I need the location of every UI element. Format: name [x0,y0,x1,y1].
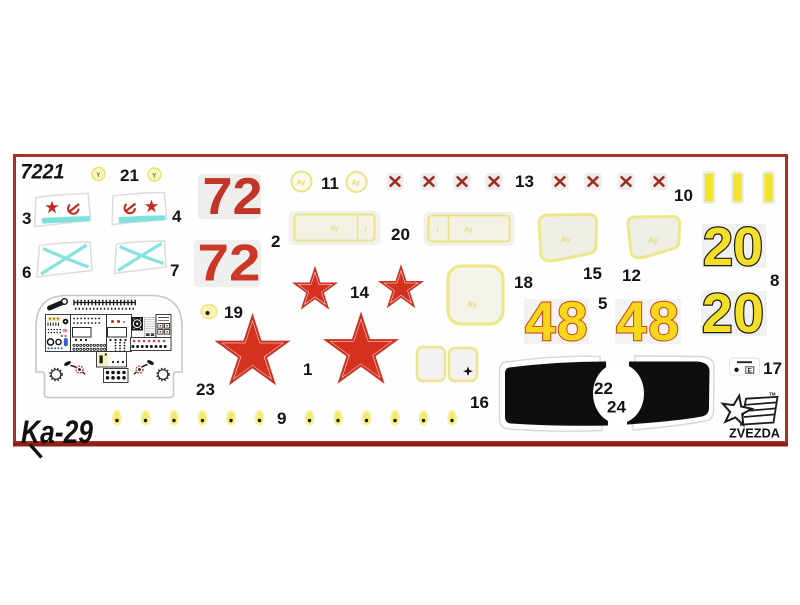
svg-text:9: 9 [277,409,286,428]
svg-text:24: 24 [607,398,626,417]
svg-text:5: 5 [598,294,607,313]
svg-text:15: 15 [583,264,602,283]
svg-text:Ay: Ay [352,180,361,187]
svg-text:14: 14 [350,283,369,302]
svg-text:16: 16 [470,393,489,412]
svg-text:6: 6 [22,263,31,282]
svg-text:7: 7 [170,261,179,280]
svg-text:Ay: Ay [297,180,306,187]
svg-text:Ay: Ay [330,226,339,233]
svg-text:72: 72 [203,167,263,225]
svg-text:48: 48 [616,290,679,352]
svg-text:Ay: Ay [464,227,473,234]
svg-text:22: 22 [594,379,613,398]
svg-text:TM: TM [769,392,776,397]
svg-text:20: 20 [391,225,410,244]
svg-text:3: 3 [22,209,31,228]
svg-text:ZVEZDA: ZVEZDA [729,427,780,441]
svg-text:20: 20 [703,217,763,277]
svg-text:Ay: Ay [561,235,571,244]
svg-text:Ay: Ay [648,236,658,245]
svg-text:E: E [748,367,753,374]
svg-text:10: 10 [674,186,693,205]
svg-text:72: 72 [198,234,261,292]
svg-text:Y: Y [96,173,100,179]
svg-text:Ay: Ay [467,300,477,309]
svg-text:20: 20 [702,282,764,344]
svg-text:21: 21 [120,166,139,185]
svg-text:4: 4 [172,207,182,226]
svg-text:13: 13 [515,172,534,191]
svg-text:2: 2 [271,232,280,251]
svg-text:17: 17 [763,359,782,378]
svg-text:48: 48 [525,290,588,352]
svg-text:19: 19 [224,303,243,322]
svg-text:Y: Y [152,174,156,180]
svg-text:23: 23 [196,380,215,399]
svg-text:12: 12 [622,266,641,285]
svg-text:8: 8 [770,271,779,290]
svg-text:1: 1 [303,360,312,379]
svg-text:7221: 7221 [21,160,65,184]
svg-text:11: 11 [321,174,339,193]
